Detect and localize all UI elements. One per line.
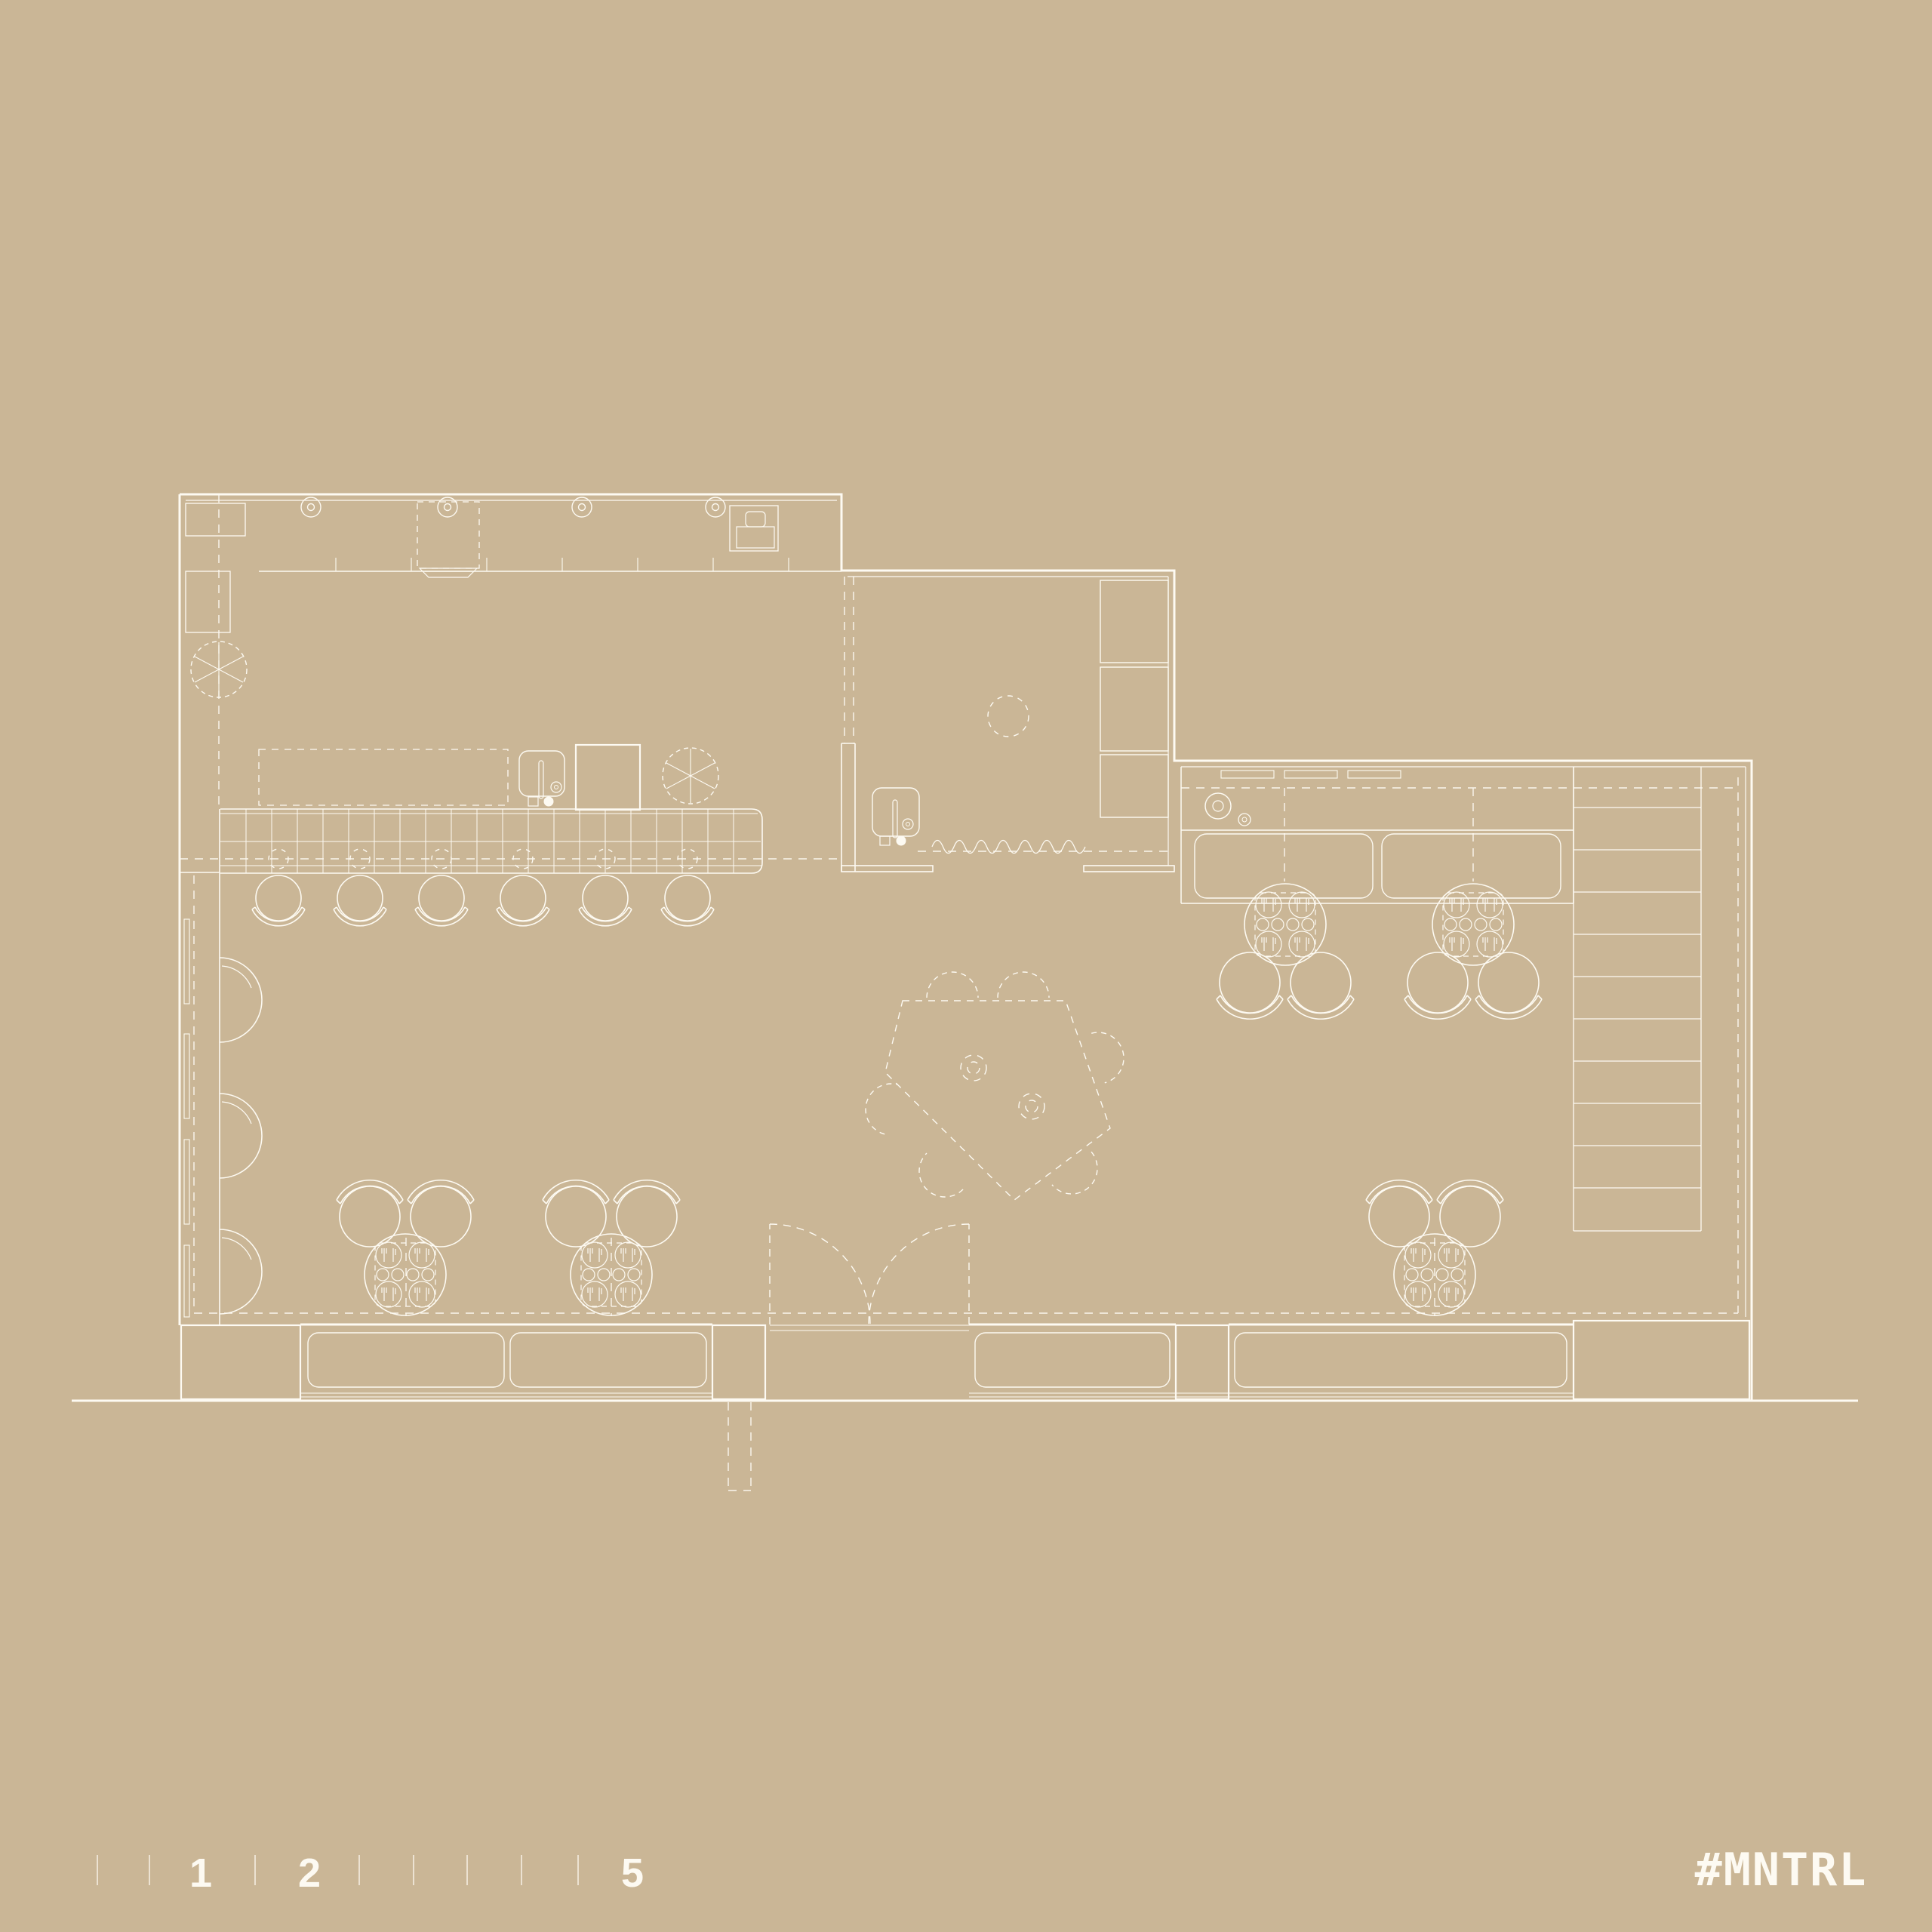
watermark-hashtag: #MNTRL	[1695, 1844, 1868, 1897]
restaurant-floor-plan: 1 2 5 #MNTRL	[0, 0, 1932, 1932]
scale-label-5: 5	[621, 1850, 644, 1896]
scale-label-1: 1	[189, 1850, 212, 1896]
scale-label-2: 2	[298, 1850, 321, 1896]
plan-background	[0, 0, 1932, 1932]
